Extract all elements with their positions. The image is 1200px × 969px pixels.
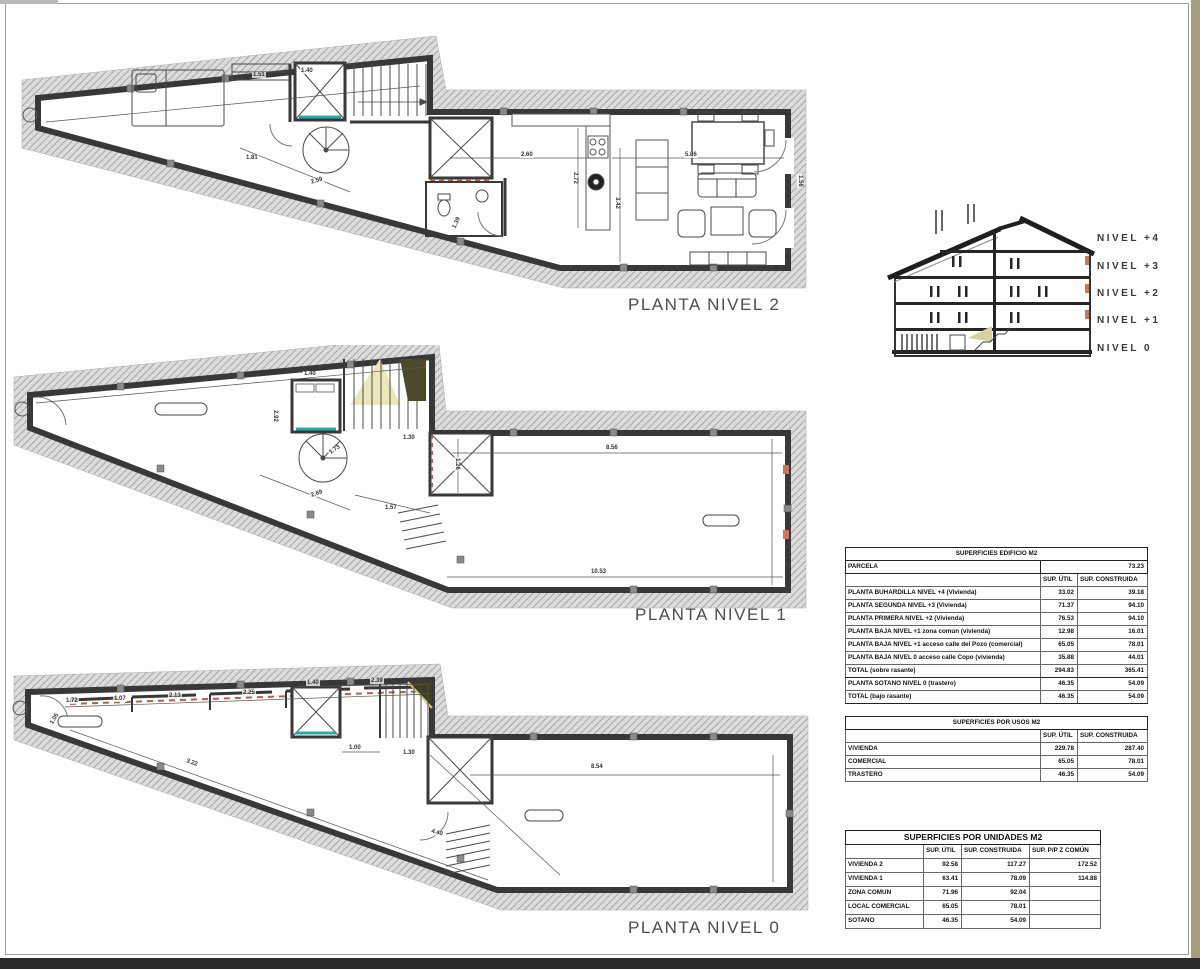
table-row: PLANTA BAJA NIVEL +1 zona común (viviend… [846,626,1148,639]
floor-plan-nivel-0: 1.721.072.132.251.402.391.001.308.543.22… [10,660,810,960]
table-row: PLANTA PRIMERA NIVEL +2 (Vivienda)76.539… [846,613,1148,626]
section-level-label: NIVEL +4 [1097,233,1160,244]
patio-shaft-icon [430,433,492,495]
table-cell-construida: 78.09 [962,873,1030,887]
total-sobre-label: TOTAL (sobre rasante) [846,665,1041,678]
floor-plan-nivel-0-drawing [10,660,810,960]
col-header-sup-construida: SUP. CONSTRUIDA [1078,574,1148,587]
island-counter-icon [636,140,668,220]
section-level-label: NIVEL 0 [1097,343,1152,354]
table-cell-construida: 16.01 [1078,626,1148,639]
table-cell-util: 76.53 [1041,613,1078,626]
table-row: VIVIENDA 163.4178.09114.88 [846,873,1101,887]
table-cell-construida: 39.18 [1078,587,1148,600]
table-cell-label: TRASTERO [846,769,1041,782]
table-cell-construida: 78.01 [1078,639,1148,652]
table-cell-util: 33.02 [1041,587,1078,600]
table-cell-label: ZONA COMUN [846,887,924,901]
table-title: SUPERFICIES POR UNIDADES M2 [846,831,1101,845]
col-header-sup-util: SUP. ÚTIL [1041,574,1078,587]
table-cell-util: 71.96 [924,887,962,901]
table-cell-pp [1030,887,1101,901]
table-superficies-usos: SUPERFICIES POR USOS M2 SUP. ÚTIL SUP. C… [845,716,1147,782]
empty-header-cell [846,574,1041,587]
table-cell-util: 46.35 [924,915,962,929]
table-cell-label: SOTANO [846,915,924,929]
plan-title-nivel-0: PLANTA NIVEL 0 [628,918,780,938]
table-cell-label: PLANTA BAJA NIVEL +1 zona común (viviend… [846,626,1041,639]
access-marker [703,515,739,526]
section-level-label: NIVEL +3 [1097,261,1160,272]
scan-edge-smudge [0,0,58,4]
elevator-shaft-icon [292,687,340,737]
table-cell-label: VIVIENDA 2 [846,859,924,873]
parcela-label: PARCELA [846,561,1041,574]
table-row: PLANTA BAJA NIVEL +1 acceso calle del Po… [846,639,1148,652]
sotano-construida: 54.09 [1078,678,1148,691]
section-level-label: NIVEL +1 [1097,315,1160,326]
table-cell-pp: 114.88 [1030,873,1101,887]
table-superficies-unidades: SUPERFICIES POR UNIDADES M2 SUP. ÚTIL SU… [845,830,1100,929]
table-cell-construida: 287.40 [1078,743,1148,756]
table-cell-construida: 94.10 [1078,600,1148,613]
table-cell-util: 65.05 [1041,639,1078,652]
table-row: LOCAL COMERCIAL65.0578.01 [846,901,1101,915]
table-cell-label: PLANTA BAJA NIVEL 0 acceso calle Copo (v… [846,652,1041,665]
table-cell-pp [1030,915,1101,929]
table-cell-util: 63.41 [924,873,962,887]
table-cell-construida: 117.27 [962,859,1030,873]
col-header-sup-pp-comun: SUP. P/P Z COMÚN [1030,845,1101,859]
total-sobre-util: 294.83 [1041,665,1078,678]
table-cell-label: COMERCIAL [846,756,1041,769]
table-cell-label: VIVIENDA 1 [846,873,924,887]
table-cell-util: 65.05 [924,901,962,915]
table-cell-construida: 78.01 [1078,756,1148,769]
table-row: TRASTERO46.3554.09 [846,769,1148,782]
col-header-sup-construida: SUP. CONSTRUIDA [962,845,1030,859]
sotano-util: 46.35 [1041,678,1078,691]
table-cell-construida: 78.01 [962,901,1030,915]
col-header-sup-util: SUP. ÚTIL [924,845,962,859]
access-marker [155,403,207,415]
elevator-shaft-icon [295,63,345,120]
table-cell-pp: 172.52 [1030,859,1101,873]
patio-shaft-icon [430,118,492,178]
table-cell-pp [1030,901,1101,915]
table-row: PLANTA BUHARDILLA NIVEL +4 (Vivienda)33.… [846,587,1148,600]
empty-header-cell [846,730,1041,743]
table-row: VIVIENDA 292.58117.27172.52 [846,859,1101,873]
floor-plan-nivel-1-drawing [10,345,820,635]
table-cell-label: VIVIENDA [846,743,1041,756]
table-cell-construida: 44.01 [1078,652,1148,665]
total-sobre-construida: 365.41 [1078,665,1148,678]
table-cell-util: 12.98 [1041,626,1078,639]
table-cell-label: PLANTA BUHARDILLA NIVEL +4 (Vivienda) [846,587,1041,600]
table-cell-util: 71.37 [1041,600,1078,613]
parcela-value: 73.23 [1041,561,1148,574]
floor-plan-nivel-2-drawing [20,30,820,320]
table-row: COMERCIAL65.0578.01 [846,756,1148,769]
plan-title-nivel-2: PLANTA NIVEL 2 [628,295,780,315]
table-cell-label: PLANTA BAJA NIVEL +1 acceso calle del Po… [846,639,1041,652]
sotano-label: PLANTA SOTANO NIVEL 0 (trastero) [846,678,1041,691]
table-row: PLANTA SEGUNDA NIVEL +3 (Vivienda)71.379… [846,600,1148,613]
table-title: SUPERFICIES POR USOS M2 [846,717,1148,730]
empty-header-cell [846,845,924,859]
floor-plan-nivel-1: 1.402.922.691.578.5610.531.261.731.30 [10,345,820,635]
spiral-stair-icon [299,434,347,482]
plan-title-nivel-1: PLANTA NIVEL 1 [635,605,787,625]
access-marker [58,716,102,727]
table-cell-label: LOCAL COMERCIAL [846,901,924,915]
bottom-edge-bar [0,958,1200,969]
table-cell-construida: 94.10 [1078,613,1148,626]
architectural-drawing-sheet: 1.401.512.605.862.723.421.812.591.391.56 [0,0,1200,969]
table-row: ZONA COMUN71.9692.04 [846,887,1101,901]
table-cell-label: PLANTA PRIMERA NIVEL +2 (Vivienda) [846,613,1041,626]
floor-plan-nivel-2: 1.401.512.605.862.723.421.812.591.391.56 [20,30,820,320]
table-cell-util: 46.35 [1041,769,1078,782]
total-bajo-label: TOTAL (bajo rasante) [846,691,1041,704]
table-cell-construida: 54.09 [962,915,1030,929]
spiral-stair-icon [303,127,349,173]
table-row: VIVIENDA229.78287.40 [846,743,1148,756]
col-header-sup-construida: SUP. CONSTRUIDA [1078,730,1148,743]
core-room [292,380,340,432]
table-cell-construida: 54.09 [1078,769,1148,782]
table-title: SUPERFICIES EDIFICIO M2 [846,548,1148,561]
table-row: SOTANO46.3554.09 [846,915,1101,929]
table-cell-label: PLANTA SEGUNDA NIVEL +3 (Vivienda) [846,600,1041,613]
table-row: PLANTA BAJA NIVEL 0 acceso calle Copo (v… [846,652,1148,665]
access-marker [525,810,563,821]
total-bajo-construida: 54.09 [1078,691,1148,704]
chimney-icon [936,204,974,234]
patio-shaft-icon [428,737,492,803]
table-cell-construida: 92.04 [962,887,1030,901]
total-bajo-util: 46.35 [1041,691,1078,704]
table-cell-util: 229.78 [1041,743,1078,756]
section-level-label: NIVEL +2 [1097,288,1160,299]
table-cell-util: 92.58 [924,859,962,873]
table-cell-util: 35.88 [1041,652,1078,665]
table-cell-util: 65.05 [1041,756,1078,769]
page-edge-band [1191,0,1200,969]
col-header-sup-util: SUP. ÚTIL [1041,730,1078,743]
table-superficies-edificio: SUPERFICIES EDIFICIO M2 PARCELA 73.23 SU… [845,547,1147,704]
